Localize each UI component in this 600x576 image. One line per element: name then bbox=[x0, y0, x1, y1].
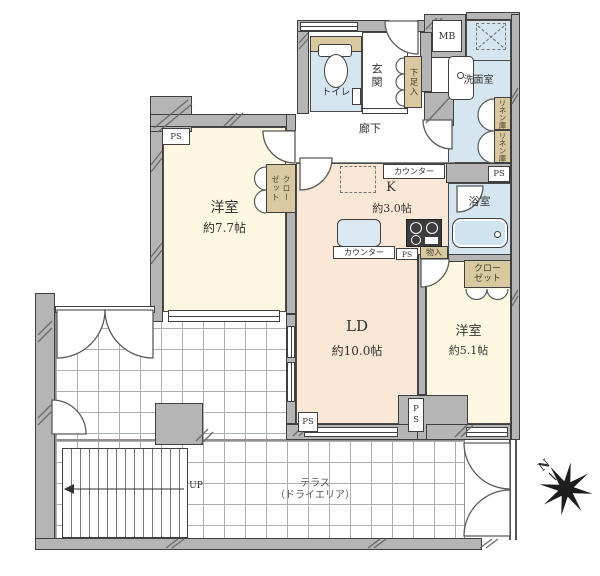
wall-right bbox=[511, 14, 520, 440]
window bbox=[287, 326, 295, 358]
stairs-up-label: UP bbox=[184, 481, 208, 491]
small-storage-label: 物入 bbox=[426, 247, 442, 258]
linen-label: リネン庫 bbox=[497, 99, 508, 129]
floorplan-canvas: クローゼット 下足入 リネン庫 リネン庫 クロー ゼット 物入 カウンター カウ… bbox=[0, 0, 600, 576]
entrance-step bbox=[362, 108, 408, 114]
room-label-entrance: 玄関 bbox=[368, 52, 384, 100]
room-area-western2: 約5.1帖 bbox=[426, 342, 511, 358]
room-label-hallway: 廊下 bbox=[340, 120, 400, 136]
wall bbox=[150, 114, 296, 127]
shoe-cabinet-label: 下足入 bbox=[407, 68, 419, 97]
terrace-fence bbox=[509, 440, 517, 540]
closet-western2: クロー ゼット bbox=[464, 260, 511, 288]
room-label-kitchen: K bbox=[376, 180, 406, 195]
hall-kitchen-boundary bbox=[296, 162, 455, 163]
small-storage: 物入 bbox=[420, 246, 448, 259]
washing-machine-space bbox=[476, 23, 506, 50]
toilet-bowl bbox=[324, 54, 348, 88]
pipe-space-4: PS bbox=[298, 412, 318, 432]
wall bbox=[286, 114, 296, 131]
pipe-space-1: PS bbox=[162, 128, 190, 145]
linen-cabinet-1: リネン庫 bbox=[494, 97, 511, 130]
shoe-cabinet: 下足入 bbox=[404, 56, 422, 108]
window bbox=[287, 362, 295, 402]
pipe-space-5: PS bbox=[408, 398, 424, 432]
room-label-ld: LD bbox=[296, 317, 418, 335]
room-area-kitchen: 約3.0帖 bbox=[347, 200, 437, 216]
linen-cabinet-2: リネン庫 bbox=[494, 130, 511, 163]
room-label-toilet: トイレ bbox=[308, 84, 364, 98]
room-label-western2: 洋室 bbox=[426, 320, 511, 339]
window-terrace-doors bbox=[55, 306, 155, 313]
kitchen-stove bbox=[406, 219, 442, 247]
window bbox=[304, 427, 398, 437]
pipe-space-2: PS bbox=[488, 166, 510, 182]
pipe-space-3: PS bbox=[396, 248, 418, 260]
room-area-western1: 約7.7帖 bbox=[163, 219, 286, 236]
linen-label: リネン庫 bbox=[497, 132, 508, 162]
window bbox=[168, 310, 280, 322]
staircase bbox=[62, 448, 188, 538]
counter-top: カウンター bbox=[383, 164, 445, 179]
wall bbox=[297, 20, 309, 114]
closet-label-line1: クロー bbox=[474, 264, 501, 274]
room-area-ld: 約10.0帖 bbox=[296, 342, 418, 359]
terrace-label-line2: （ドライエリア） bbox=[250, 486, 380, 501]
room-label-bathroom: 浴室 bbox=[448, 193, 511, 209]
wall-terrace-left bbox=[35, 293, 55, 550]
counter-bottom: カウンター bbox=[333, 246, 395, 259]
wall bbox=[418, 254, 426, 395]
room-label-western1: 洋室 bbox=[163, 197, 286, 217]
bathtub bbox=[452, 218, 508, 248]
compass-north-label: N bbox=[533, 454, 554, 475]
window bbox=[300, 22, 358, 31]
room-label-washroom: 洗面室 bbox=[446, 71, 511, 86]
window bbox=[466, 427, 508, 437]
meter-box: MB bbox=[432, 20, 462, 52]
closet-label-line2: ゼット bbox=[474, 274, 501, 284]
wall-pillar bbox=[155, 403, 203, 445]
kitchen-sink bbox=[337, 219, 381, 247]
refrigerator-space bbox=[340, 166, 376, 193]
wall-bottom bbox=[35, 538, 482, 550]
